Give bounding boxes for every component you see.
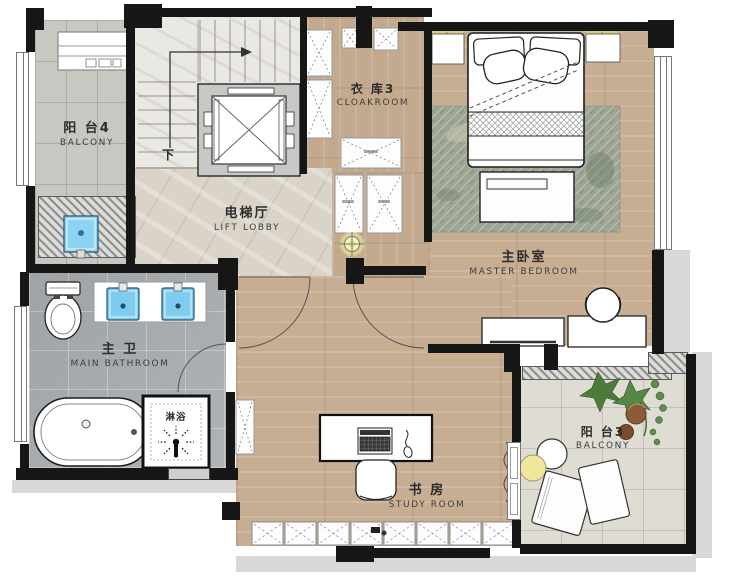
shower-threshold	[168, 468, 210, 480]
study-desk	[320, 415, 432, 461]
wall-segment	[300, 8, 307, 174]
balcony-door-frame	[507, 442, 521, 520]
balcony3-name-en: BALCONY	[576, 441, 630, 453]
shower-label: 淋浴	[165, 412, 186, 424]
laundry-counter	[58, 32, 134, 70]
wall-segment	[428, 344, 508, 353]
wall-segment	[226, 272, 235, 342]
room-label-study: 书 房 STUDY ROOM	[389, 483, 466, 512]
stairs-down-cn: 下	[162, 148, 174, 162]
wall-segment	[20, 272, 29, 306]
window	[654, 56, 672, 250]
room-label-balcony3: 阳 台3 BALCONY	[576, 425, 630, 452]
vanity-double-sink	[94, 282, 206, 322]
column	[544, 344, 558, 370]
room-label-lift-lobby: 电梯厅 LIFT LOBBY	[214, 206, 280, 235]
study-name-en: STUDY ROOM	[389, 500, 466, 512]
bedroom-chair	[585, 288, 620, 323]
balcony-table-yellow	[520, 455, 546, 481]
wall-segment	[520, 544, 694, 554]
bed-bench	[480, 172, 574, 222]
master-bedroom-name-cn: 主卧室	[469, 250, 578, 267]
shower	[143, 396, 209, 468]
master-bedroom-name-en: MASTER BEDROOM	[469, 267, 578, 279]
window	[14, 306, 27, 442]
window	[16, 52, 29, 186]
wall-segment	[398, 22, 656, 31]
column	[336, 546, 374, 562]
wall-segment	[424, 28, 432, 242]
lift-lobby-name-en: LIFT LOBBY	[214, 223, 280, 235]
wall-segment	[26, 28, 35, 52]
column	[26, 8, 44, 30]
bathtub	[34, 398, 152, 466]
main-bathroom-name-cn: 主 卫	[70, 342, 169, 359]
bed	[468, 33, 584, 167]
door-arcs	[178, 277, 424, 392]
wall-segment	[160, 8, 360, 17]
wall-segment	[374, 548, 490, 558]
shower-label-cn: 淋浴	[165, 412, 186, 424]
column	[346, 258, 364, 284]
wall-segment	[364, 266, 426, 275]
balcony3-name-cn: 阳 台3	[576, 425, 630, 441]
bookshelf-row	[252, 522, 514, 545]
balcony4-name-cn: 阳 台4	[60, 121, 114, 138]
wall-segment	[26, 186, 35, 272]
laundry-sink	[64, 216, 98, 258]
room-label-balcony4: 阳 台4 BALCONY	[60, 121, 114, 150]
main-bathroom-name-en: MAIN BATHROOM	[70, 359, 169, 371]
nightstand-left	[432, 34, 464, 64]
room-label-main-bathroom: 主 卫 MAIN BATHROOM	[70, 342, 169, 371]
wall-segment	[512, 366, 521, 442]
wall-segment	[226, 392, 235, 480]
floor-plan: 阳 台4 BALCONY 衣 库3 CLOAKROOM 电梯厅 LIFT LOB…	[0, 0, 733, 585]
wall-segment	[26, 264, 222, 273]
room-label-master-bedroom: 主卧室 MASTER BEDROOM	[469, 250, 578, 279]
stairs-down-label: 下	[162, 148, 174, 164]
nightstand-right	[586, 34, 620, 62]
balcony4-name-en: BALCONY	[60, 138, 114, 150]
lift-lobby-name-cn: 电梯厅	[214, 206, 280, 223]
column	[222, 502, 240, 520]
wall-segment	[372, 8, 432, 17]
wall-segment	[652, 250, 664, 354]
cloakroom-name-en: CLOAKROOM	[337, 98, 410, 110]
elevator	[198, 84, 300, 176]
cloakroom-name-cn: 衣 库3	[337, 82, 410, 98]
room-label-cloakroom: 衣 库3 CLOAKROOM	[337, 82, 410, 109]
wall-segment	[686, 354, 696, 554]
bedroom-counter	[482, 316, 646, 347]
column	[356, 6, 372, 48]
column	[648, 20, 674, 48]
toilet	[45, 282, 81, 339]
study-name-cn: 书 房	[389, 483, 466, 500]
wall-segment	[126, 16, 135, 266]
